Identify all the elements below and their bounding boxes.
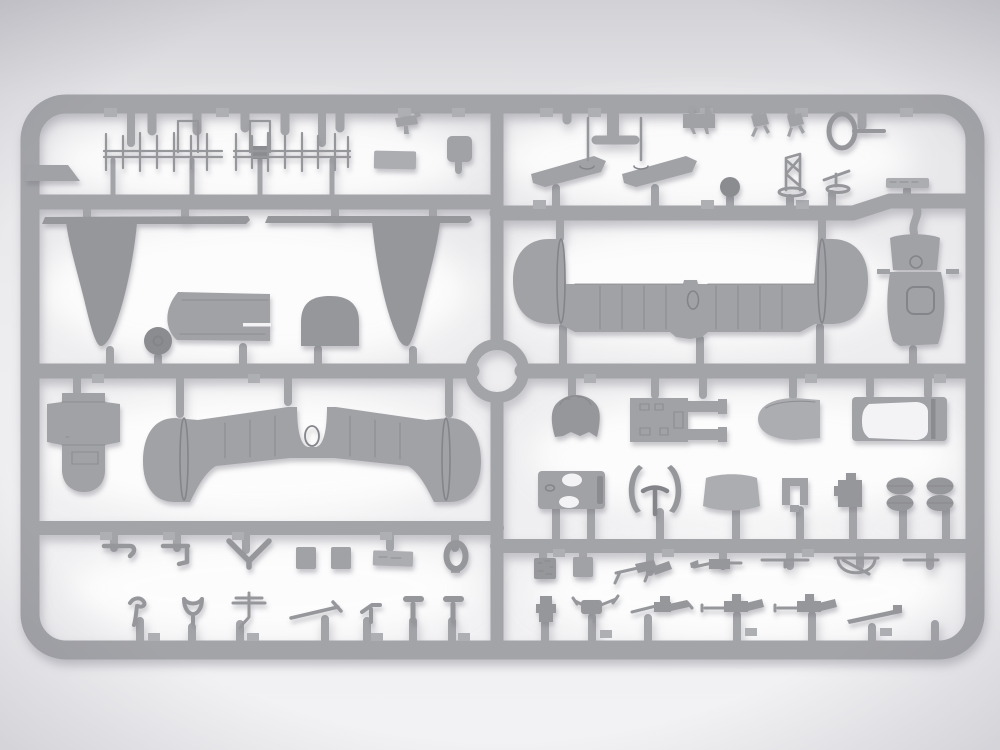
- sprue-photo: [0, 0, 1000, 750]
- vignette: [0, 0, 1000, 750]
